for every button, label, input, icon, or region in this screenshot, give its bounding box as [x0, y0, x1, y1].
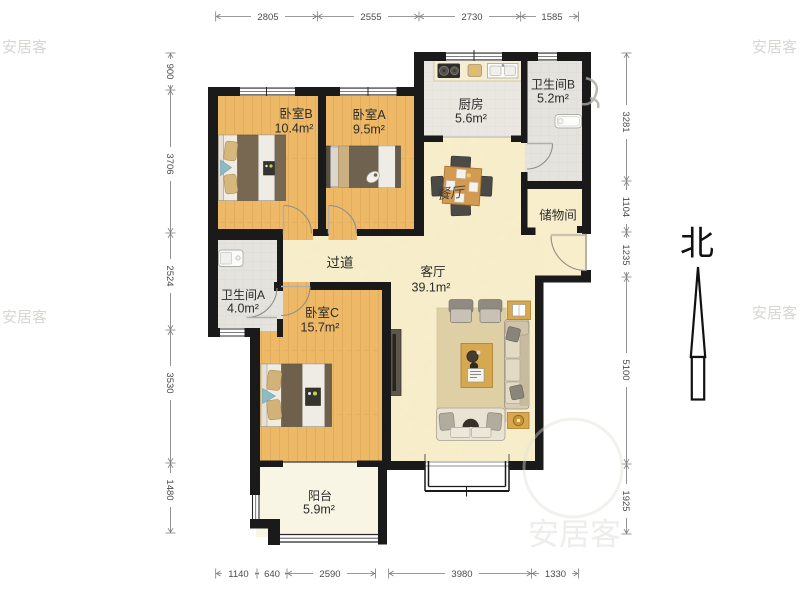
svg-text:2805: 2805 [257, 12, 278, 23]
svg-text:餐厅: 餐厅 [435, 183, 468, 202]
svg-text:卧室B: 卧室B [279, 106, 312, 121]
svg-text:安居客: 安居客 [2, 39, 47, 56]
svg-text:厨房: 厨房 [458, 97, 483, 112]
svg-text:2590: 2590 [319, 569, 340, 580]
svg-text:卫生间A: 卫生间A [221, 288, 265, 302]
svg-text:北: 北 [680, 225, 714, 263]
svg-text:储物间: 储物间 [539, 208, 577, 223]
svg-text:39.1m²: 39.1m² [412, 281, 451, 295]
svg-text:3530: 3530 [164, 372, 175, 393]
svg-text:1585: 1585 [541, 12, 562, 23]
svg-text:安居客: 安居客 [528, 517, 621, 552]
svg-text:15.7m²: 15.7m² [301, 321, 340, 335]
svg-text:安居客: 安居客 [2, 309, 47, 326]
svg-text:卧室A: 卧室A [352, 107, 386, 122]
svg-text:2555: 2555 [360, 12, 381, 23]
svg-text:5100: 5100 [620, 359, 631, 380]
svg-text:640: 640 [264, 569, 280, 580]
svg-text:安居客: 安居客 [752, 39, 797, 56]
svg-text:5.2m²: 5.2m² [537, 92, 569, 106]
svg-text:1925: 1925 [620, 490, 631, 511]
svg-text:2730: 2730 [461, 12, 482, 23]
svg-text:10.4m²: 10.4m² [275, 122, 314, 136]
svg-text:卧室C: 卧室C [305, 305, 339, 320]
svg-text:5.9m²: 5.9m² [303, 503, 335, 517]
svg-text:1235: 1235 [620, 244, 631, 265]
svg-text:2524: 2524 [164, 265, 175, 286]
svg-text:客厅: 客厅 [420, 264, 445, 279]
svg-text:卫生间B: 卫生间B [531, 78, 575, 92]
svg-text:1140: 1140 [228, 569, 248, 580]
svg-text:9.5m²: 9.5m² [353, 123, 385, 137]
svg-text:1330: 1330 [545, 569, 566, 580]
svg-text:阳台: 阳台 [308, 488, 332, 503]
svg-text:1480: 1480 [164, 479, 175, 500]
svg-text:1104: 1104 [620, 197, 631, 217]
svg-text:3980: 3980 [451, 569, 472, 580]
svg-text:3706: 3706 [164, 153, 175, 174]
svg-text:过道: 过道 [327, 256, 354, 271]
svg-text:3281: 3281 [620, 111, 631, 132]
svg-text:4.0m²: 4.0m² [227, 302, 259, 316]
svg-text:900: 900 [164, 64, 175, 80]
svg-text:5.6m²: 5.6m² [455, 112, 487, 126]
svg-text:安居客: 安居客 [752, 305, 797, 322]
